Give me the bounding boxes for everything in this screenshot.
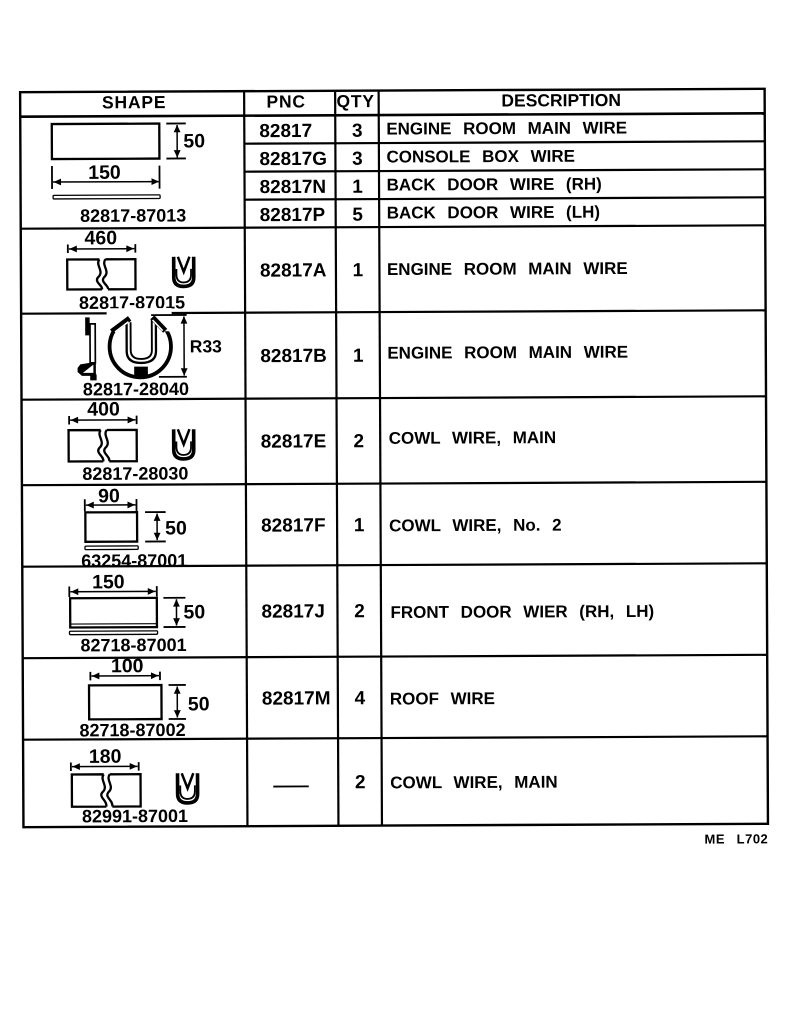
- svg-text:1: 1: [353, 346, 364, 367]
- svg-text:82817F: 82817F: [261, 515, 326, 536]
- svg-text:82718-87001: 82718-87001: [80, 635, 186, 655]
- svg-text:82817N: 82817N: [260, 177, 327, 198]
- svg-text:82817G: 82817G: [259, 149, 327, 170]
- svg-text:2: 2: [354, 601, 365, 622]
- svg-text:50: 50: [183, 130, 205, 152]
- svg-text:BACK DOOR WIRE (LH): BACK DOOR WIRE (LH): [387, 203, 600, 223]
- svg-text:COWL WIRE, MAIN: COWL WIRE, MAIN: [390, 773, 558, 793]
- svg-text:SHAPE: SHAPE: [102, 92, 166, 112]
- svg-text:CONSOLE BOX WIRE: CONSOLE BOX WIRE: [386, 147, 575, 167]
- svg-text:82817J: 82817J: [261, 601, 325, 622]
- svg-text:ROOF WIRE: ROOF WIRE: [390, 689, 495, 708]
- svg-text:82817-28040: 82817-28040: [83, 379, 189, 399]
- svg-text:82817-87013: 82817-87013: [80, 205, 186, 225]
- svg-text:3: 3: [352, 121, 363, 142]
- svg-text:82817A: 82817A: [260, 260, 327, 281]
- svg-text:FRONT DOOR WIER (RH, LH): FRONT DOOR WIER (RH, LH): [390, 602, 654, 622]
- svg-text:82991-87001: 82991-87001: [82, 806, 188, 826]
- svg-text:150: 150: [88, 162, 121, 184]
- svg-text:4: 4: [355, 688, 366, 709]
- svg-text:ENGINE ROOM MAIN WIRE: ENGINE ROOM MAIN WIRE: [387, 343, 628, 363]
- svg-text:COWL WIRE, No. 2: COWL WIRE, No. 2: [389, 516, 562, 536]
- svg-text:63254-87001: 63254-87001: [81, 551, 187, 571]
- svg-text:QTY: QTY: [336, 91, 374, 111]
- svg-text:R33: R33: [190, 336, 222, 356]
- svg-text:460: 460: [84, 227, 117, 249]
- svg-text:50: 50: [183, 601, 205, 623]
- svg-text:82817-28030: 82817-28030: [82, 463, 188, 483]
- svg-text:50: 50: [188, 693, 210, 715]
- svg-text:DESCRIPTION: DESCRIPTION: [501, 90, 621, 111]
- svg-text:82718-87002: 82718-87002: [79, 720, 185, 740]
- svg-text:3: 3: [352, 149, 363, 170]
- svg-text:2: 2: [353, 431, 364, 452]
- svg-text:1: 1: [352, 177, 363, 198]
- svg-text:2: 2: [355, 772, 366, 793]
- svg-text:150: 150: [92, 571, 125, 593]
- svg-text:100: 100: [111, 655, 144, 677]
- svg-text:82817E: 82817E: [261, 431, 327, 452]
- svg-text:ENGINE ROOM MAIN WIRE: ENGINE ROOM MAIN WIRE: [386, 118, 627, 138]
- svg-text:82817B: 82817B: [260, 346, 327, 367]
- svg-text:400: 400: [87, 398, 120, 420]
- svg-text:90: 90: [98, 485, 120, 507]
- svg-text:50: 50: [165, 517, 187, 539]
- svg-text:1: 1: [354, 515, 365, 536]
- svg-text:82817M: 82817M: [262, 688, 331, 709]
- svg-text:1: 1: [353, 260, 364, 281]
- svg-text:ME L702: ME L702: [704, 831, 768, 846]
- svg-text:180: 180: [89, 746, 122, 768]
- svg-text:PNC: PNC: [266, 91, 305, 111]
- svg-text:BACK DOOR WIRE (RH): BACK DOOR WIRE (RH): [387, 175, 602, 195]
- svg-text:ENGINE ROOM MAIN WIRE: ENGINE ROOM MAIN WIRE: [387, 259, 628, 279]
- svg-text:82817: 82817: [259, 121, 312, 142]
- svg-text:82817P: 82817P: [260, 205, 326, 226]
- svg-text:5: 5: [352, 205, 363, 226]
- svg-text:COWL WIRE, MAIN: COWL WIRE, MAIN: [389, 428, 557, 448]
